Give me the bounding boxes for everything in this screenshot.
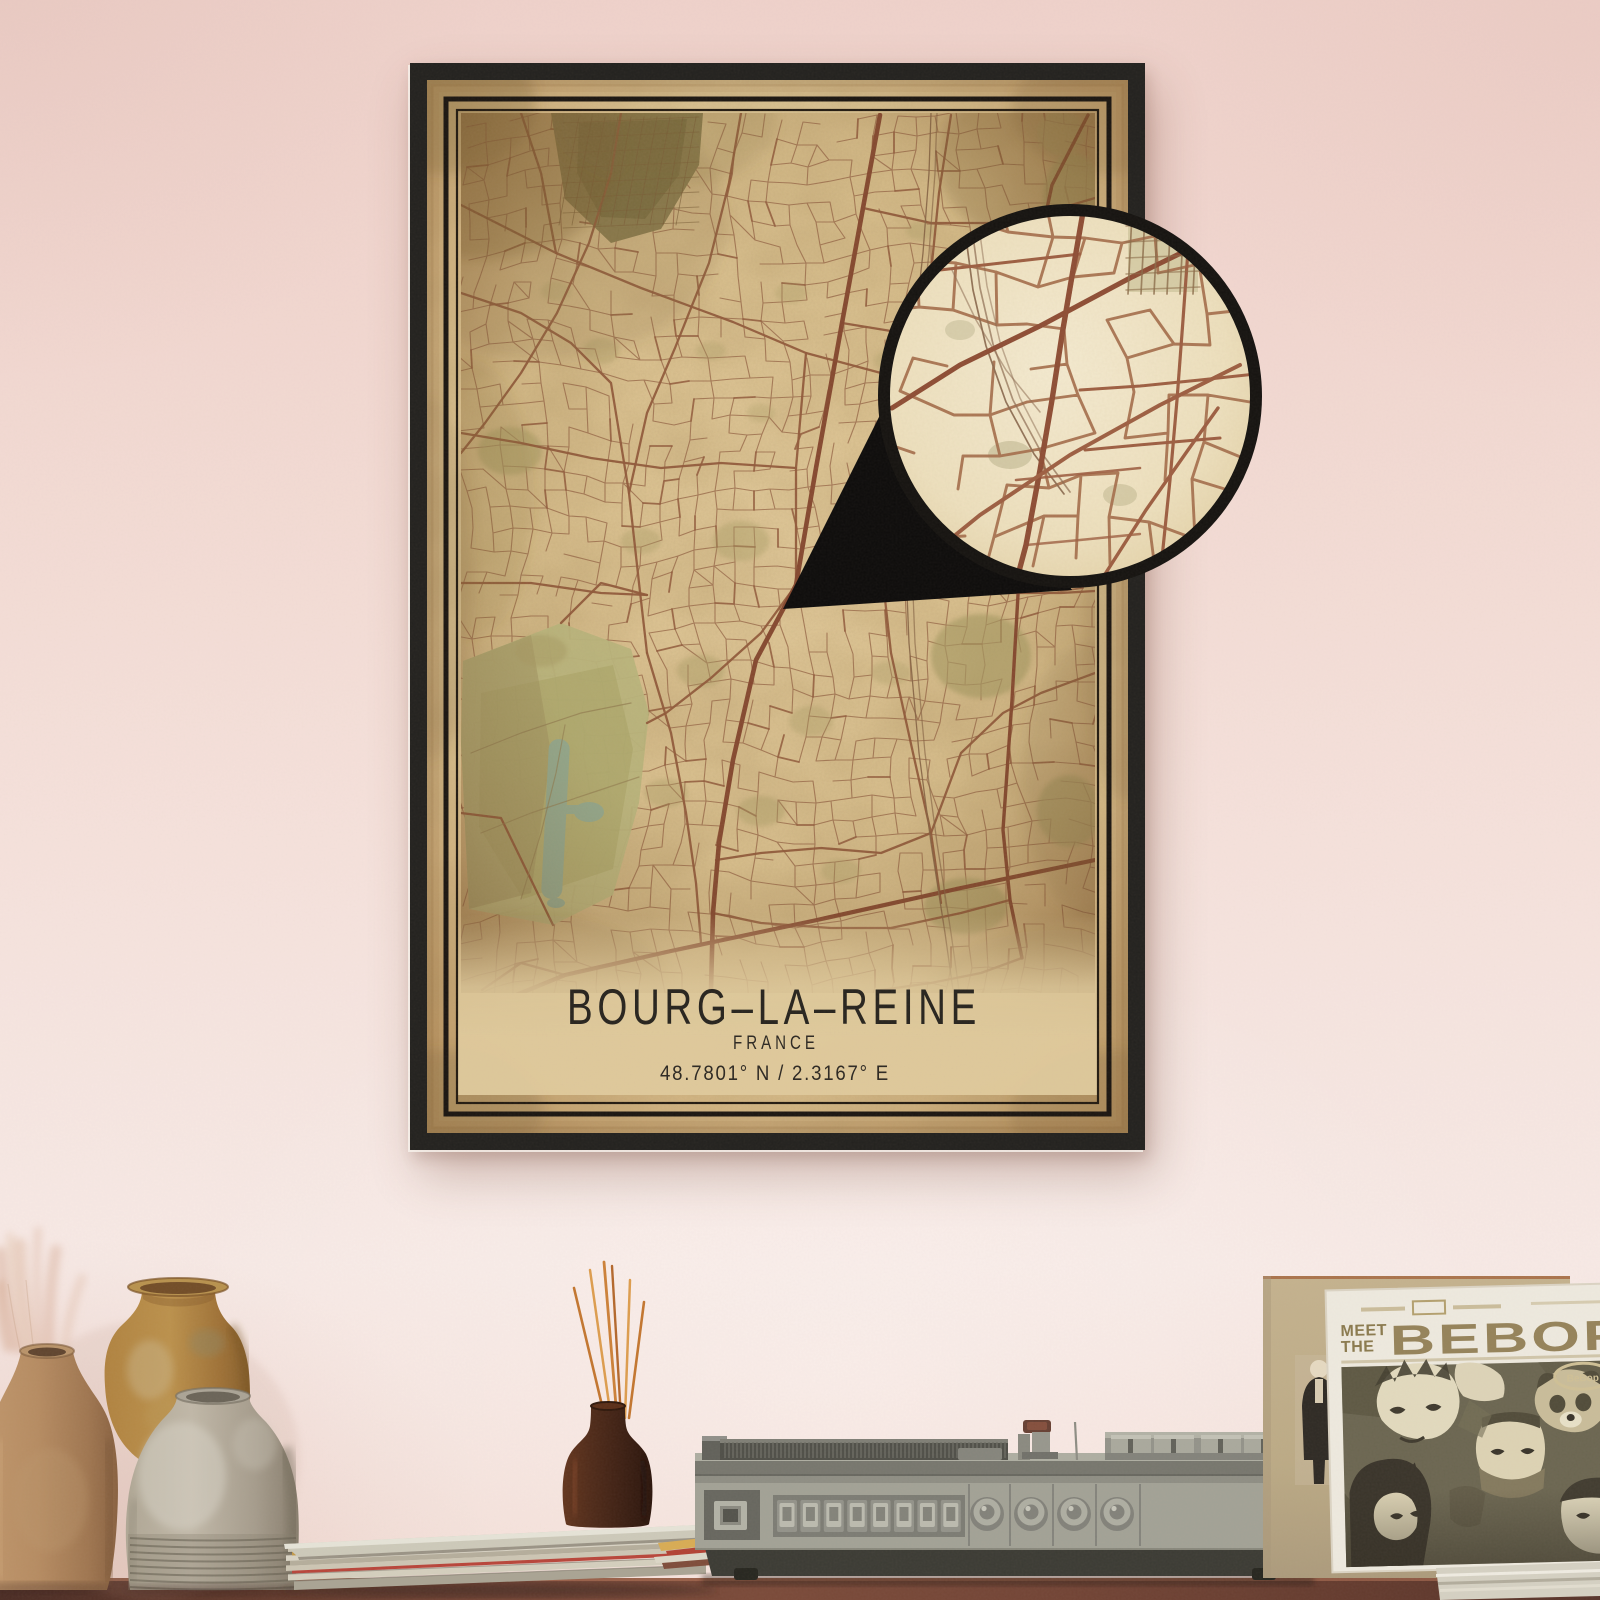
- svg-text:BOURG–LA–REINE: BOURG–LA–REINE: [567, 979, 981, 1035]
- svg-text:FRANCE: FRANCE: [733, 1033, 819, 1054]
- svg-text:48.7801° N / 2.3167° E: 48.7801° N / 2.3167° E: [660, 1062, 890, 1085]
- svg-text:BeBop: BeBop: [1567, 1373, 1599, 1385]
- svg-text:MEET: MEET: [1340, 1322, 1387, 1340]
- svg-text:THE: THE: [1341, 1338, 1375, 1356]
